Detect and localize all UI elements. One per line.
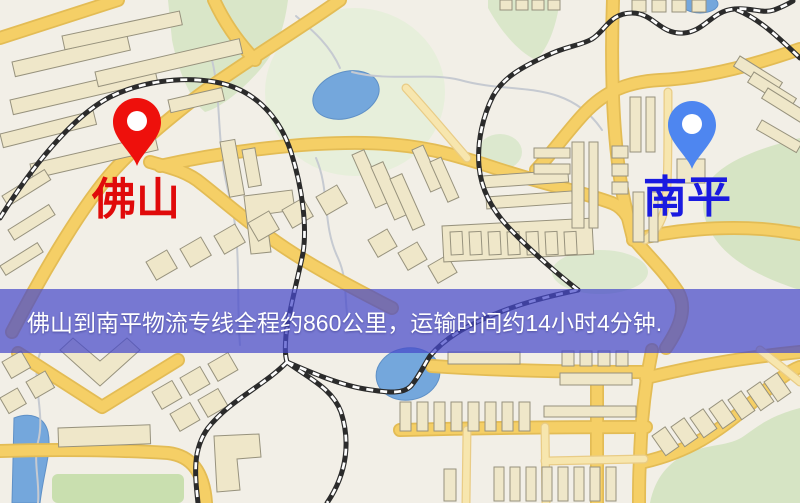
nanping-pin-body [668,101,716,169]
foshan-pin-hole [127,111,147,131]
map-screenshot: 佛山 南平 佛山到南平物流专线全程约860公里，运输时间约14小时4分钟. [0,0,800,503]
distance-banner-text: 佛山到南平物流专线全程约860公里，运输时间约14小时4分钟. [27,304,662,338]
foshan-pin-body [113,98,161,166]
base-map [0,0,800,503]
foshan-label: 佛山 [92,178,180,222]
foshan-pin-icon[interactable] [111,97,163,169]
nanping-pin-icon[interactable] [666,100,718,172]
nanping-pin-hole [682,114,702,134]
nanping-label: 南平 [643,176,731,220]
distance-banner: 佛山到南平物流专线全程约860公里，运输时间约14小时4分钟. [0,289,800,353]
